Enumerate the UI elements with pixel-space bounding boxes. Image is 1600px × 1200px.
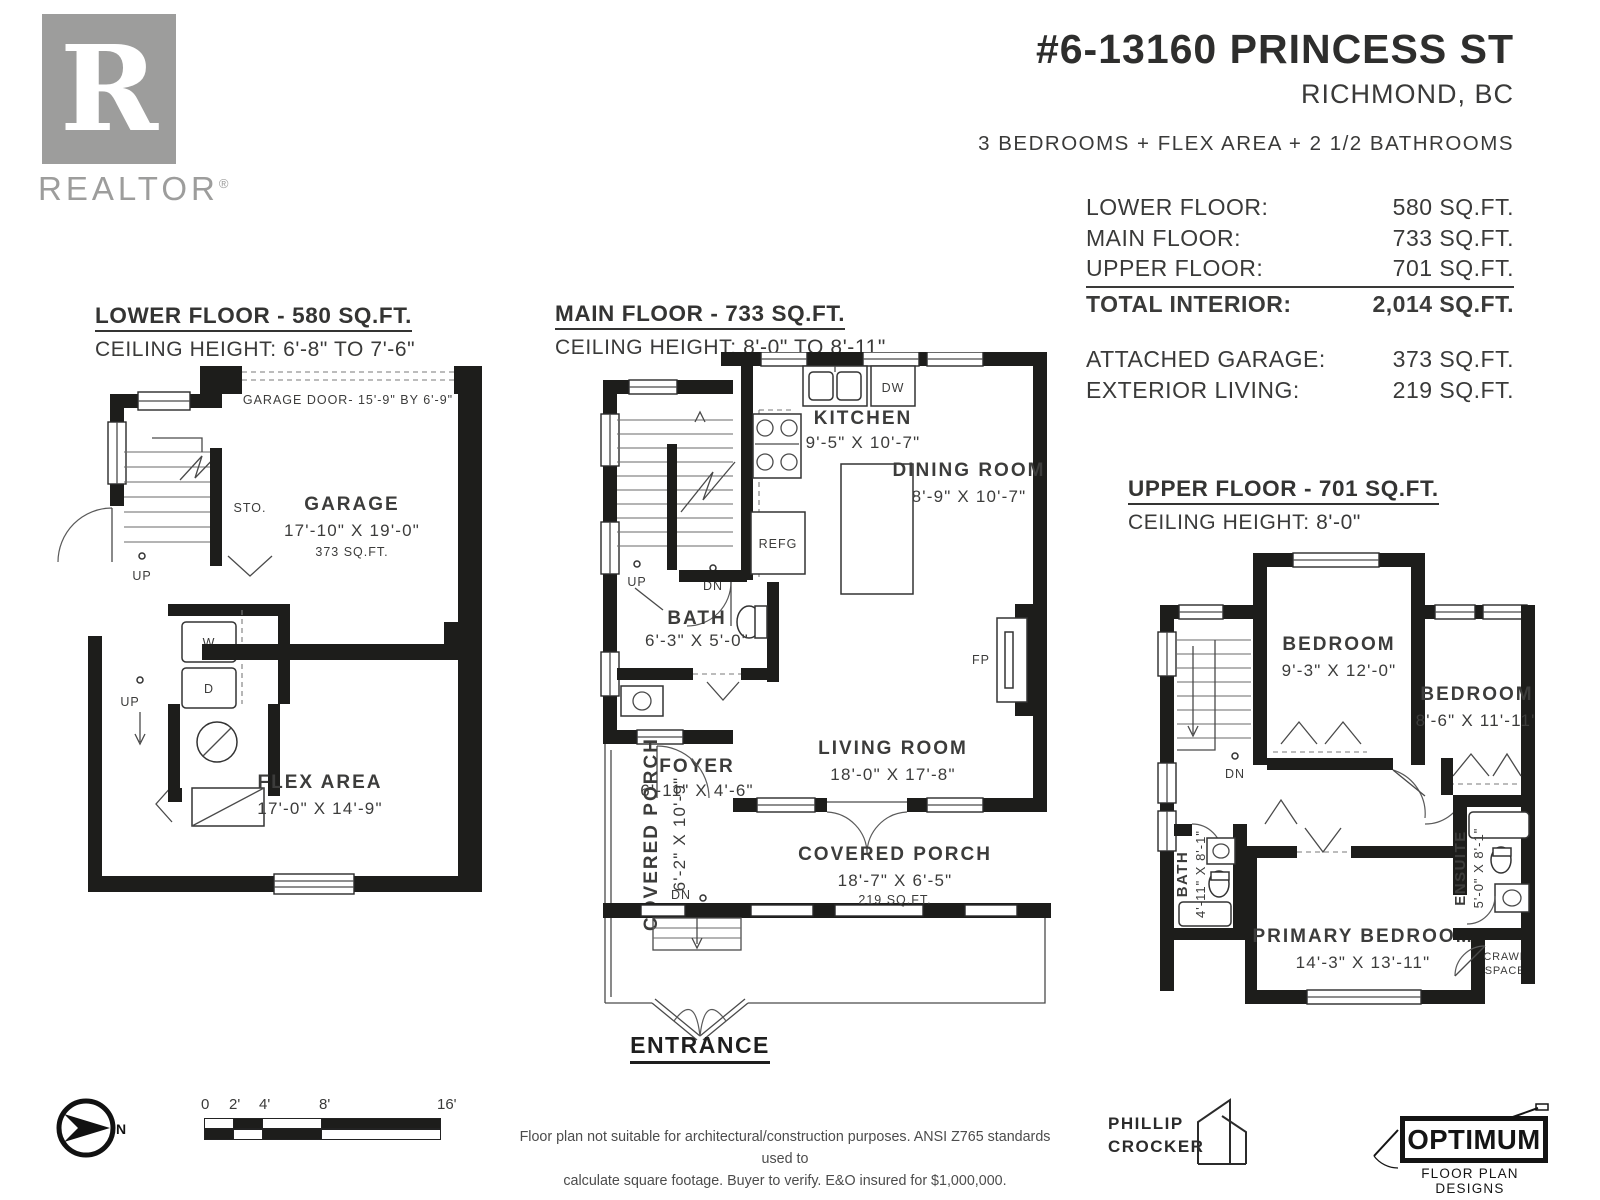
upper-floor-heading: UPPER FLOOR - 701 SQ.FT. CEILING HEIGHT:… — [1128, 476, 1439, 535]
living-label: LIVING ROOM — [818, 738, 968, 759]
porch-side-label: COVERED PORCH — [641, 737, 662, 931]
registered-mark: ® — [219, 176, 233, 191]
bedroom1-closet — [1267, 722, 1393, 770]
porch-dn-label: DN — [671, 888, 691, 902]
area-stats-table: LOWER FLOOR:580 SQ.FT. MAIN FLOOR:733 SQ… — [1086, 194, 1514, 407]
realtor-logo: R — [42, 14, 176, 164]
bed-bath-summary: 3 BEDROOMS + FLEX AREA + 2 1/2 BATHROOMS — [978, 132, 1514, 156]
scale-tick-8: 8' — [319, 1096, 330, 1113]
main-floor-plan: FP DW REFG KITCHEN 9'-5" — [545, 352, 1055, 1052]
porch-front-label: COVERED PORCH — [798, 844, 992, 865]
bath-dim: 4'-11" X 8'-1" — [1193, 830, 1208, 918]
disclaimer-text: Floor plan not suitable for architectura… — [505, 1126, 1065, 1192]
entrance-label: ENTRANCE — [610, 1032, 790, 1059]
crawl-label-2: SPACE — [1485, 965, 1525, 977]
dryer-label: D — [204, 682, 214, 696]
garage-dim: 17'-10" X 19'-0" — [284, 521, 420, 540]
scale-tick-4: 4' — [259, 1096, 270, 1113]
phillip-crocker-house-icon — [1192, 1094, 1256, 1166]
primary-dim: 14'-3" X 13'-11" — [1296, 953, 1431, 972]
porch-front-dim: 18'-7" X 6'-5" — [838, 871, 953, 890]
covered-porches: COVERED PORCH 6'-2" X 10'-9" DN COVERED … — [603, 737, 1051, 1040]
main-bath: BATH 6'-3" X 5'-0" — [617, 582, 779, 716]
fireplace: FP — [972, 604, 1047, 716]
main-stairs: UP DN — [617, 412, 747, 626]
dishwasher-label: DW — [882, 381, 905, 395]
stat-row-upper: UPPER FLOOR:701 SQ.FT. — [1086, 255, 1514, 288]
garage-door-label: GARAGE DOOR- 15'-9" BY 6'-9" — [243, 393, 453, 407]
stat-row-garage: ATTACHED GARAGE:373 SQ.FT. — [1086, 346, 1514, 377]
bedroom2-dim: 8'-6" X 11'-11" — [1416, 711, 1535, 730]
optimum-logo-box: OPTIMUM — [1400, 1116, 1548, 1163]
city-subtitle: RICHMOND, BC — [978, 79, 1514, 110]
floor-plan-sheet: R REALTOR® #6-13160 PRINCESS ST RICHMOND… — [0, 0, 1600, 1200]
lower-stairs: UP — [124, 438, 218, 583]
ensuite-dim: 5'-0" X 8'-1" — [1471, 828, 1486, 909]
scale-tick-16: 16' — [437, 1096, 457, 1113]
porch-side-dim: 6'-2" X 10'-9" — [670, 777, 689, 892]
flex-dim: 17'-0" X 14'-9" — [257, 799, 382, 818]
crawl-label-1: CRAWL — [1483, 951, 1526, 963]
header: #6-13160 PRINCESS ST RICHMOND, BC 3 BEDR… — [978, 26, 1514, 156]
garage-area: 373 SQ.FT. — [315, 545, 388, 559]
kitchen-label: KITCHEN — [814, 408, 912, 429]
upper-stairs: DN — [1177, 640, 1251, 781]
dn-label: DN — [1225, 767, 1245, 781]
upper-floor-plan: BEDROOM 9'-3" X 12'-0" — [1115, 528, 1535, 1020]
bath-label: BATH — [1174, 851, 1191, 898]
svg-text:N: N — [116, 1121, 126, 1137]
dining-dim: 8'-9" X 10'-7" — [912, 487, 1027, 506]
stat-row-total: TOTAL INTERIOR:2,014 SQ.FT. — [1086, 288, 1514, 322]
foyer-label: FOYER — [659, 756, 734, 777]
lower-floor-plan: GARAGE DOOR- 15'-9" BY 6'-9" UP STO — [52, 360, 482, 905]
up-label: UP — [132, 569, 151, 583]
scale-tick-0: 0 — [201, 1096, 209, 1113]
storage-label: STO. — [234, 501, 267, 515]
phillip-crocker-wordmark: PHILLIP CROCKER — [1108, 1112, 1204, 1158]
bath-dim: 6'-3" X 5'-0" — [645, 631, 749, 650]
flex-label: FLEX AREA — [258, 772, 383, 793]
realtor-wordmark: REALTOR® — [38, 170, 218, 208]
stat-row-main: MAIN FLOOR:733 SQ.FT. — [1086, 225, 1514, 256]
upper-bath: BATH 4'-11" X 8'-1" — [1174, 824, 1247, 940]
scale-tick-2: 2' — [229, 1096, 240, 1113]
up-label: UP — [627, 575, 646, 589]
kitchen-dim: 9'-5" X 10'-7" — [806, 433, 921, 452]
stat-row-exterior: EXTERIOR LIVING:219 SQ.FT. — [1086, 377, 1514, 408]
bedroom2-label: BEDROOM — [1420, 684, 1533, 705]
page-title: #6-13160 PRINCESS ST — [978, 26, 1514, 73]
stat-row-lower: LOWER FLOOR:580 SQ.FT. — [1086, 194, 1514, 225]
lower-floor-heading: LOWER FLOOR - 580 SQ.FT. CEILING HEIGHT:… — [95, 303, 415, 362]
bath-label: BATH — [667, 608, 726, 629]
fridge-label: REFG — [759, 537, 798, 551]
north-compass-icon: N — [48, 1090, 138, 1166]
primary-label: PRIMARY BEDROOM — [1252, 926, 1473, 947]
bedroom1-label: BEDROOM — [1282, 634, 1395, 655]
dining-label: DINING ROOM — [893, 460, 1046, 481]
optimum-wordmark: OPTIMUM — [1407, 1124, 1540, 1156]
up2-label: UP — [120, 695, 139, 709]
realtor-r-glyph: R — [60, 30, 158, 148]
bedroom2-closet — [1441, 754, 1521, 795]
optimum-subtitle: FLOOR PLAN DESIGNS — [1392, 1166, 1548, 1196]
scale-bar: 0 2' 4' 8' 16' — [205, 1096, 465, 1144]
living-dim: 18'-0" X 17'-8" — [830, 765, 955, 784]
ensuite-label: ENSUITE — [1452, 830, 1469, 906]
garage-label: GARAGE — [304, 494, 399, 515]
optimum-door-swing-icon — [1368, 1128, 1404, 1170]
fireplace-label: FP — [972, 653, 990, 667]
porch-front-area: 219 SQ.FT. — [858, 893, 931, 907]
bedroom1-dim: 9'-3" X 12'-0" — [1282, 661, 1397, 680]
